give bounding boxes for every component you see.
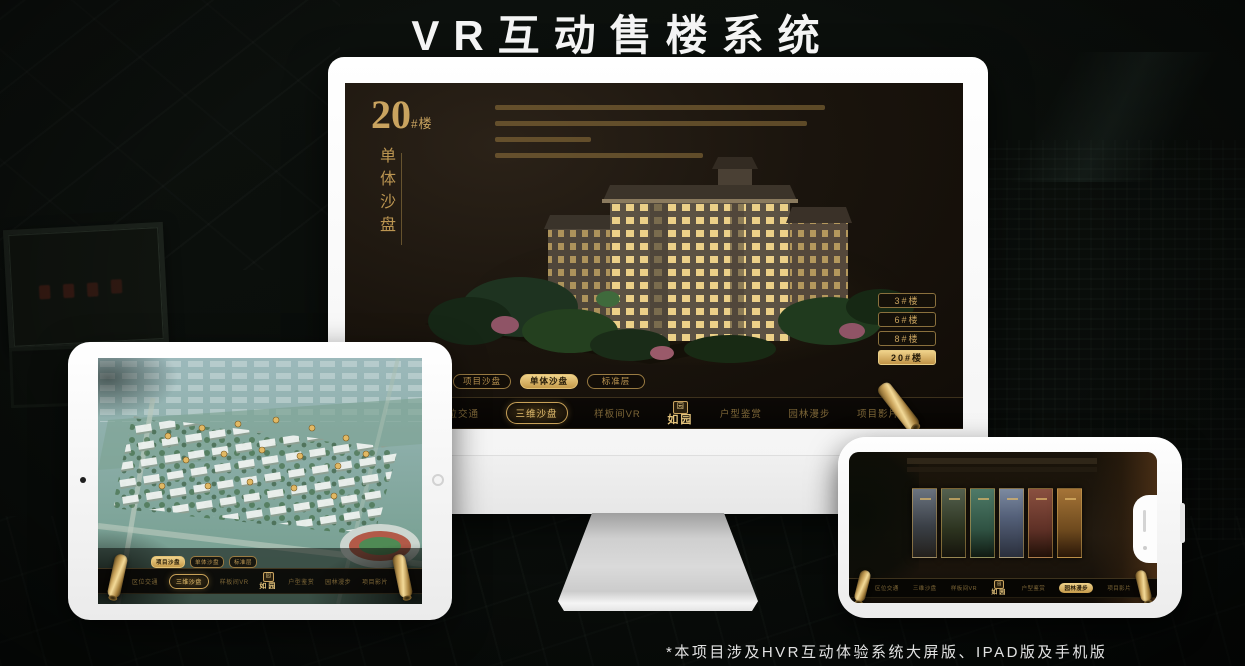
brand-seal-icon: 园 bbox=[994, 580, 1004, 589]
brand-logo[interactable]: 园 如园 bbox=[259, 572, 277, 590]
section-title-vertical: 单体沙盘 bbox=[373, 147, 397, 239]
tablet-tab-single-sandtable[interactable]: 单体沙盘 bbox=[190, 556, 224, 568]
gallery-panel-5[interactable] bbox=[1028, 488, 1053, 558]
nav-item-project-film[interactable]: 项目影片 bbox=[362, 577, 388, 586]
tablet-sandtable-tab-group: 项目沙盘 单体沙盘 标准层 bbox=[151, 556, 257, 568]
gallery-panel-3[interactable] bbox=[970, 488, 995, 558]
desc-line bbox=[495, 137, 591, 142]
nav-item-location[interactable]: 区位交通 bbox=[875, 584, 899, 592]
tablet-screen: 项目沙盘 单体沙盘 标准层 区位交通 三维沙盘 样板间VR 园 如园 户型鉴赏 … bbox=[98, 358, 422, 604]
background-plaque-decor bbox=[3, 222, 169, 352]
phone-power-button bbox=[1180, 503, 1185, 543]
phone-navbar: 区位交通 三维沙盘 样板间VR 园 如园 户型鉴赏 园林漫步 项目影片 bbox=[849, 578, 1157, 598]
nav-item-showroom-vr[interactable]: 样板间VR bbox=[951, 584, 977, 592]
tablet-device: 项目沙盘 单体沙盘 标准层 区位交通 三维沙盘 样板间VR 园 如园 户型鉴赏 … bbox=[68, 342, 452, 620]
floor-button-8[interactable]: 8#楼 bbox=[878, 331, 936, 346]
building-number: 20 bbox=[371, 92, 411, 137]
gallery-panel-1[interactable] bbox=[912, 488, 937, 558]
poster-background: VR互动售楼系统 20#楼 单体沙盘 bbox=[0, 0, 1245, 666]
phone-screen: 区位交通 三维沙盘 样板间VR 园 如园 户型鉴赏 园林漫步 项目影片 bbox=[849, 452, 1157, 603]
gallery-panel-6[interactable] bbox=[1057, 488, 1082, 558]
phone-camera-icon bbox=[1143, 546, 1147, 550]
brand-logo[interactable]: 园 如园 bbox=[667, 401, 693, 426]
brand-name: 如园 bbox=[667, 415, 693, 426]
tablet-camera-icon bbox=[80, 477, 86, 483]
nav-item-floorplans[interactable]: 户型鉴赏 bbox=[1022, 584, 1046, 592]
brand-seal-icon: 园 bbox=[673, 401, 688, 414]
building-number-suffix: #楼 bbox=[411, 116, 433, 131]
nav-item-3d-sandtable[interactable]: 三维沙盘 bbox=[913, 584, 937, 592]
sandtable-tab-group: 项目沙盘 单体沙盘 标准层 bbox=[453, 374, 645, 389]
tab-project-sandtable[interactable]: 项目沙盘 bbox=[453, 374, 511, 389]
nav-item-garden-walk[interactable]: 园林漫步 bbox=[1059, 583, 1093, 593]
gallery-panel-2[interactable] bbox=[941, 488, 966, 558]
desc-line bbox=[495, 105, 825, 110]
tab-single-sandtable[interactable]: 单体沙盘 bbox=[520, 374, 578, 389]
nav-item-garden-walk[interactable]: 园林漫步 bbox=[325, 577, 351, 586]
tablet-tab-standard-floor[interactable]: 标准层 bbox=[229, 556, 257, 568]
tablet-navbar: 区位交通 三维沙盘 样板间VR 园 如园 户型鉴赏 园林漫步 项目影片 bbox=[98, 568, 422, 594]
brand-logo[interactable]: 园 如园 bbox=[991, 580, 1007, 596]
gallery-panel-4[interactable] bbox=[999, 488, 1024, 558]
building-number-heading: 20#楼 bbox=[371, 91, 433, 138]
brand-name: 如园 bbox=[259, 583, 277, 590]
desc-line bbox=[495, 121, 807, 126]
tablet-home-button bbox=[432, 474, 444, 486]
phone-device: 区位交通 三维沙盘 样板间VR 园 如园 户型鉴赏 园林漫步 项目影片 bbox=[838, 437, 1182, 618]
tab-standard-floor[interactable]: 标准层 bbox=[587, 374, 645, 389]
nav-item-floorplans[interactable]: 户型鉴赏 bbox=[288, 577, 314, 586]
floor-button-20[interactable]: 20#楼 bbox=[878, 350, 936, 365]
monitor-stand bbox=[558, 513, 758, 611]
nav-item-project-film[interactable]: 项目影片 bbox=[1107, 584, 1131, 592]
brand-seal-icon: 园 bbox=[263, 572, 274, 582]
plaque-calligraphy-decor bbox=[39, 285, 51, 300]
nav-item-garden-walk[interactable]: 园林漫步 bbox=[788, 406, 830, 420]
nav-item-location[interactable]: 区位交通 bbox=[132, 577, 158, 586]
page-title: VR互动售楼系统 bbox=[0, 2, 1245, 63]
gate-silhouette-decor bbox=[907, 458, 1097, 484]
footnote-text: *本项目涉及HVR互动体验系统大屏版、IPAD版及手机版 bbox=[666, 641, 1107, 662]
brand-name: 如园 bbox=[991, 590, 1007, 596]
building-3d-view[interactable] bbox=[400, 149, 915, 365]
nav-item-showroom-vr[interactable]: 样板间VR bbox=[220, 577, 249, 586]
nav-item-3d-sandtable[interactable]: 三维沙盘 bbox=[506, 402, 568, 424]
phone-speaker-icon bbox=[1143, 510, 1146, 532]
phone-notch bbox=[1133, 495, 1157, 563]
floor-button-6[interactable]: 6#楼 bbox=[878, 312, 936, 327]
tablet-tab-project-sandtable[interactable]: 项目沙盘 bbox=[151, 556, 185, 568]
gallery-panels bbox=[912, 488, 1082, 558]
floor-button-3[interactable]: 3#楼 bbox=[878, 293, 936, 308]
nav-item-floorplans[interactable]: 户型鉴赏 bbox=[720, 406, 762, 420]
background-river-decor bbox=[985, 52, 1245, 182]
nav-item-3d-sandtable[interactable]: 三维沙盘 bbox=[169, 574, 209, 589]
nav-item-showroom-vr[interactable]: 样板间VR bbox=[594, 406, 641, 420]
floor-button-group: 3#楼 6#楼 8#楼 20#楼 bbox=[878, 293, 936, 365]
